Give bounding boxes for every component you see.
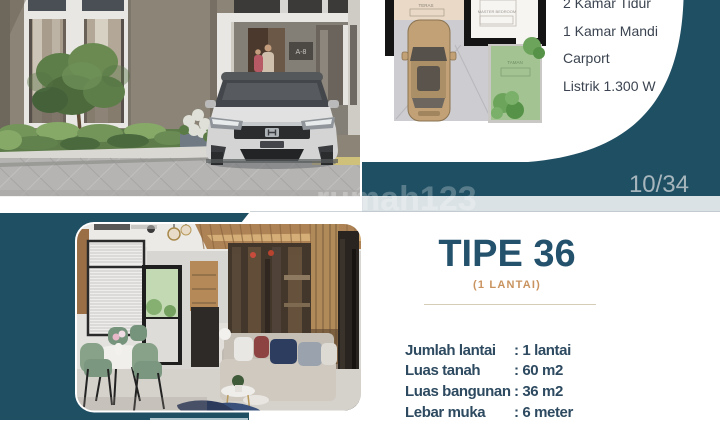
- svg-text:A-8: A-8: [296, 49, 307, 56]
- svg-text:MASTER BEDROOM: MASTER BEDROOM: [478, 9, 516, 14]
- svg-text:TERAS: TERAS: [418, 3, 433, 8]
- svg-text:TAMAN: TAMAN: [507, 60, 522, 65]
